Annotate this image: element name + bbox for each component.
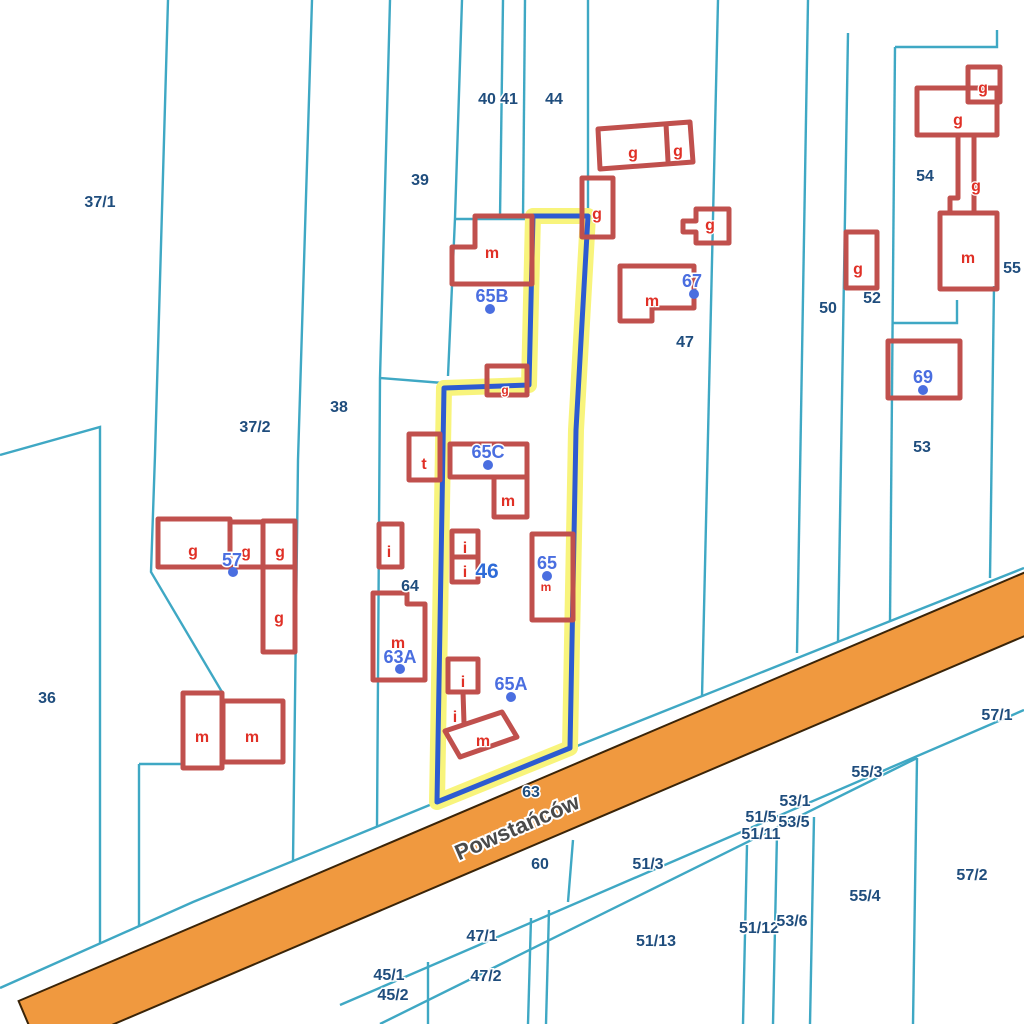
parcel-number-label: 39	[411, 172, 429, 189]
parcel-boundary-line	[913, 758, 917, 1024]
building-outline	[463, 692, 464, 723]
parcel-boundary-line	[895, 30, 997, 47]
parcel-number-label: 47/1	[466, 928, 497, 945]
parcel-number-label: 47	[676, 334, 694, 351]
building-type-label: g	[501, 383, 508, 397]
building-type-label: g	[628, 145, 638, 162]
building-type-label: m	[541, 580, 552, 594]
parcel-number-label: 37/1	[84, 194, 115, 211]
building-type-label: m	[645, 293, 659, 310]
building-type-label: g	[705, 217, 715, 234]
parcel-number-label: 50	[819, 300, 837, 317]
building-type-label: g	[274, 610, 284, 627]
parcel-number-label: 53	[913, 439, 931, 456]
parcel-boundary-line	[448, 0, 462, 376]
building-outline	[846, 232, 877, 288]
building-type-label: g	[188, 543, 198, 560]
parcel-boundary-line	[377, 0, 390, 827]
parcel-number-label: 44	[545, 91, 563, 108]
building-type-label: i	[387, 544, 391, 561]
parcel-boundary-line	[810, 817, 814, 1024]
building-type-label: m	[961, 250, 975, 267]
parcel-number-label: 51/3	[632, 856, 663, 873]
address-number-label: 65B	[475, 286, 508, 306]
address-point-dot	[689, 289, 699, 299]
parcel-number-label: 55	[1003, 260, 1021, 277]
building-type-label: m	[485, 245, 499, 262]
parcel-number-label: 45/1	[373, 967, 404, 984]
parcel-number-label: 36	[38, 690, 56, 707]
address-point-dot	[542, 571, 552, 581]
building-outline	[666, 124, 668, 161]
parcel-number-label: 53/6	[776, 913, 807, 930]
building-type-label: g	[673, 143, 683, 160]
parcel-number-label: 53/1	[779, 793, 810, 810]
cadastral-map-viewport[interactable]: Powstańców 37/13940414437/23854555052534…	[0, 0, 1024, 1024]
parcel-boundary-line	[990, 286, 994, 578]
parcel-boundary-line	[293, 0, 312, 861]
building-type-label: m	[195, 729, 209, 746]
building-type-label: m	[245, 729, 259, 746]
parcel-boundary-line	[546, 910, 549, 1024]
address-point-dot	[918, 385, 928, 395]
parcel-number-label: 38	[330, 399, 348, 416]
parcel-number-label: 41	[500, 91, 518, 108]
parcel-boundary-line	[380, 378, 443, 383]
parcel-number-label: 51/12	[739, 920, 779, 937]
parcel-number-label: 55/3	[851, 764, 882, 781]
building-type-label: g	[275, 544, 285, 561]
parcel-number-label: 55/4	[849, 888, 880, 905]
parcel-number-label: 40	[478, 91, 496, 108]
building-type-label: m	[476, 733, 490, 750]
parcel-number-label: 47/2	[470, 968, 501, 985]
parcel-boundaries-layer	[0, 0, 1024, 1024]
address-point-dot	[506, 692, 516, 702]
parcel-boundary-line	[838, 33, 848, 641]
parcel-boundary-line	[890, 47, 895, 622]
building-type-label: g	[978, 80, 988, 97]
address-number-label: 65C	[471, 442, 504, 462]
parcel-boundary-line	[568, 840, 573, 902]
address-number-label: 57	[222, 550, 242, 570]
parcel-number-label: 51/13	[636, 933, 676, 950]
building-type-label: g	[971, 178, 981, 195]
building-outline	[950, 135, 974, 213]
parcel-boundary-line	[893, 300, 957, 323]
parcel-number-label: 63	[522, 784, 540, 801]
address-number-label: 69	[913, 367, 933, 387]
parcel-number-label: 52	[863, 290, 881, 307]
parcel-boundary-line	[500, 0, 503, 218]
parcel-boundary-line	[702, 0, 718, 697]
address-number-label: 67	[682, 271, 702, 291]
building-type-label: m	[501, 493, 515, 510]
parcel-number-label: 57/1	[981, 707, 1012, 724]
building-type-label: g	[592, 206, 602, 223]
building-type-label: i	[463, 564, 467, 581]
parcel-number-label: 57/2	[956, 867, 987, 884]
building-type-label: i	[463, 540, 467, 557]
parcel-number-label: 60	[531, 856, 549, 873]
building-type-label: t	[421, 456, 427, 473]
building-type-label: g	[241, 544, 251, 561]
building-type-label: g	[953, 112, 963, 129]
building-type-label: g	[853, 261, 863, 278]
building-type-label: i	[461, 674, 465, 691]
parcel-number-label: 64	[401, 578, 419, 595]
address-point-dot	[485, 304, 495, 314]
parcel-number-label: 45/2	[377, 987, 408, 1004]
parcel-number-label: 51/5	[745, 809, 776, 826]
parcel-boundary-line	[0, 427, 100, 944]
building-type-label: i	[453, 709, 457, 726]
parcel-boundary-line	[528, 918, 531, 1024]
parcel-number-label: 37/2	[239, 419, 270, 436]
parcel-boundary-line	[523, 0, 525, 218]
parcel-boundary-line	[797, 0, 808, 653]
address-point-dot	[395, 664, 405, 674]
cadastral-map-canvas[interactable]: Powstańców 37/13940414437/23854555052534…	[0, 0, 1024, 1024]
address-point-dot	[483, 460, 493, 470]
parcel-boundary-line	[151, 0, 222, 692]
parcel-number-label: 53/5	[778, 814, 809, 831]
address-number-label: 65A	[494, 674, 527, 694]
address-number-label: 65	[537, 553, 557, 573]
parcel-number-label: 54	[916, 168, 934, 185]
parcel-number-label: 51/11	[741, 826, 780, 843]
selected-parcel-number-label: 46	[475, 560, 498, 583]
address-point-dot	[228, 567, 238, 577]
